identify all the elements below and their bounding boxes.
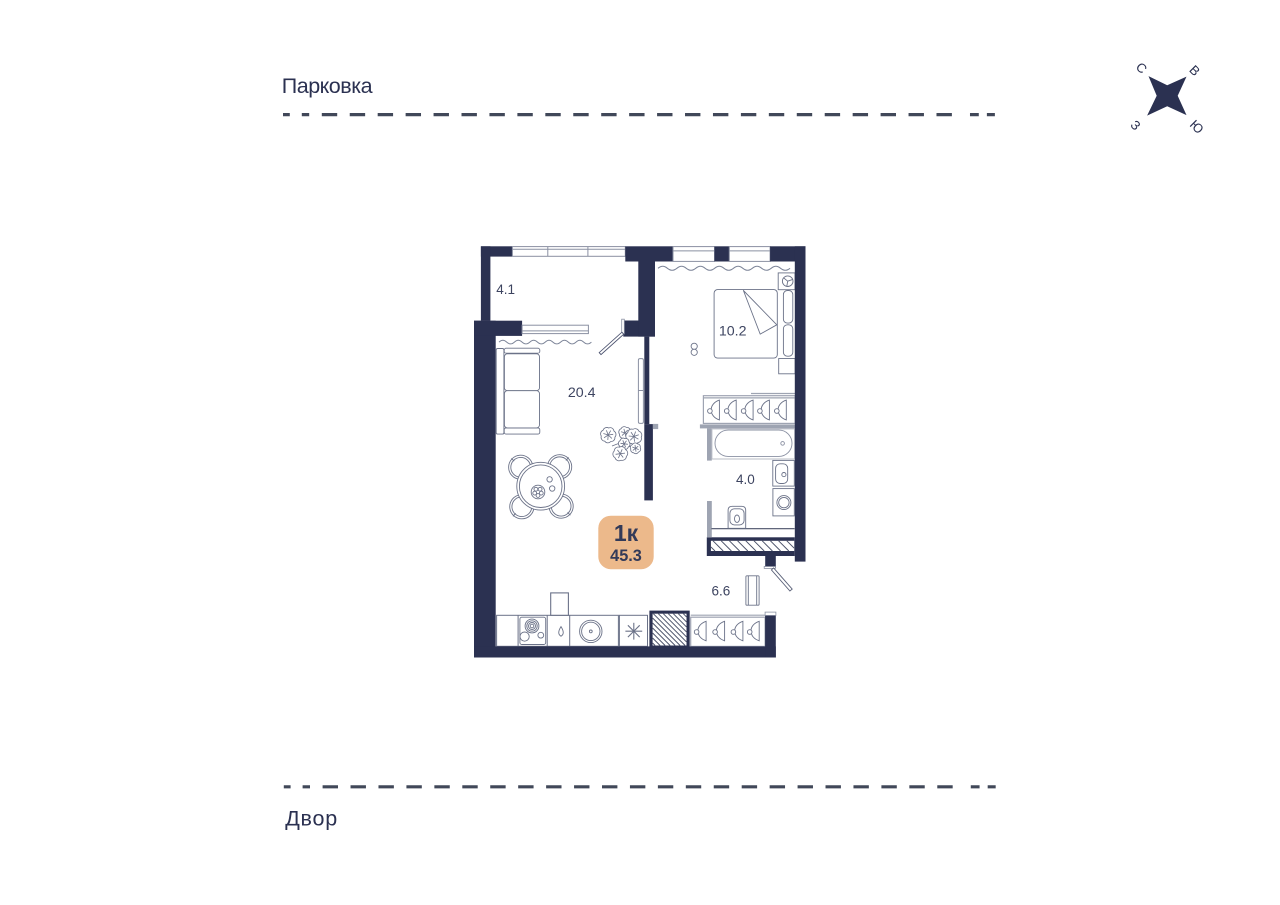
svg-text:4.1: 4.1 [496,282,515,297]
svg-text:45.3: 45.3 [610,547,642,565]
svg-text:Двор: Двор [285,806,338,830]
svg-text:4.0: 4.0 [736,472,755,487]
svg-text:6.6: 6.6 [712,583,731,598]
svg-text:Парковка: Парковка [282,74,373,98]
svg-text:20.4: 20.4 [568,385,596,401]
svg-text:10.2: 10.2 [719,324,747,340]
svg-text:1к: 1к [614,520,639,546]
